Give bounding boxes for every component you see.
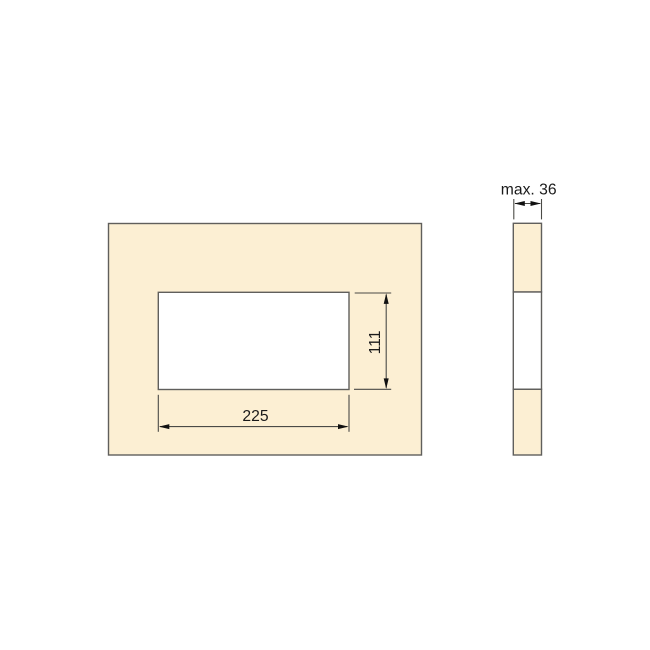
svg-text:225: 225 (242, 408, 268, 425)
svg-text:111: 111 (367, 331, 384, 355)
svg-text:max. 36: max. 36 (501, 182, 557, 199)
